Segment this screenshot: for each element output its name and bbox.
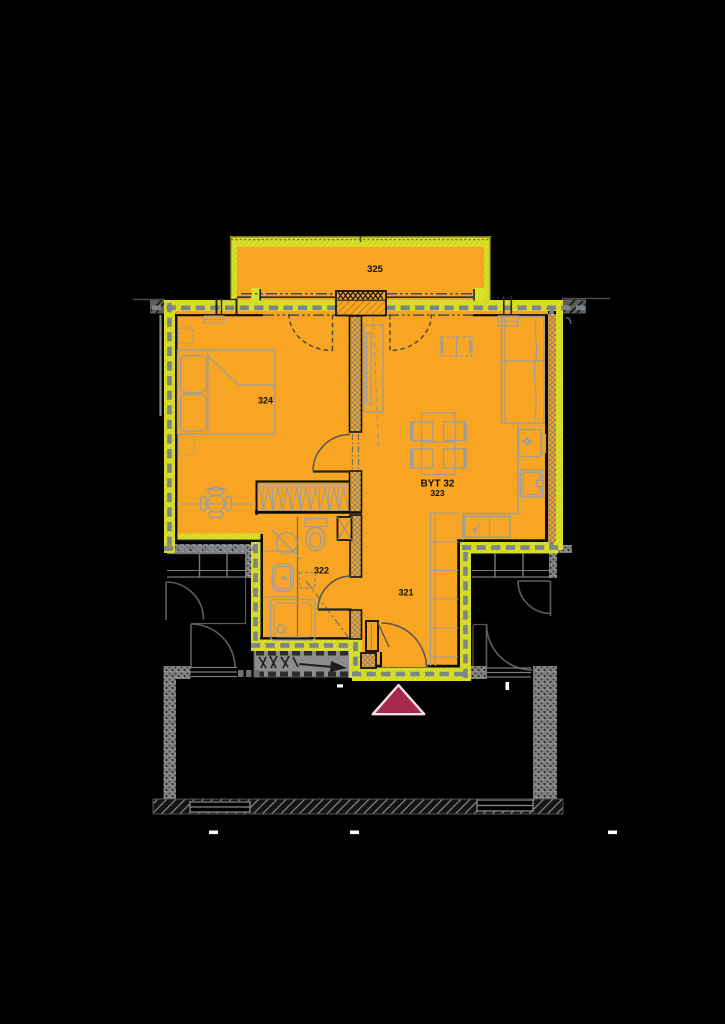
svg-text:323: 323 xyxy=(430,488,444,498)
svg-text:324: 324 xyxy=(258,396,273,406)
svg-text:325: 325 xyxy=(367,264,384,275)
svg-text:321: 321 xyxy=(398,588,413,598)
svg-text:322: 322 xyxy=(314,566,329,576)
